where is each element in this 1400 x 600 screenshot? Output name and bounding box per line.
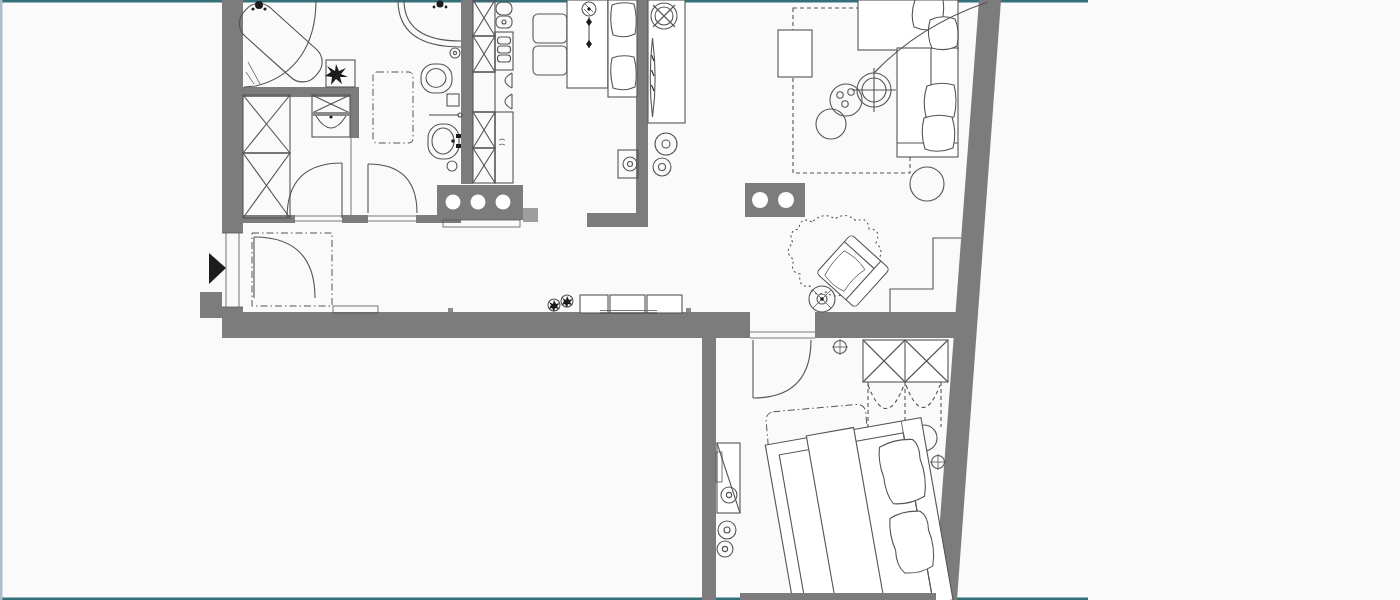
floor-plan-screenshot xyxy=(0,0,1400,600)
wall-anchor xyxy=(448,308,453,312)
bench-pillow xyxy=(611,56,637,90)
bathroom-threshold xyxy=(368,214,416,224)
wall-anchor xyxy=(686,308,691,312)
shoe-bench xyxy=(580,295,682,313)
desk xyxy=(716,443,740,513)
double-bed xyxy=(765,416,954,600)
sofa-pillow xyxy=(924,83,956,119)
left-border-line xyxy=(0,0,3,600)
sofa-pillow xyxy=(922,115,955,151)
bedroom-bottom-wall xyxy=(740,593,936,600)
island-side-tab xyxy=(523,208,538,222)
coffee-table xyxy=(778,30,812,77)
floor-plan-canvas xyxy=(0,0,1400,600)
bench-pillow xyxy=(611,3,637,37)
ceiling-fan-icon xyxy=(651,3,677,29)
bedroom-threshold xyxy=(750,330,815,340)
entry-threshold xyxy=(222,233,243,307)
dining-bench xyxy=(608,0,637,97)
laundry-threshold xyxy=(295,214,342,224)
